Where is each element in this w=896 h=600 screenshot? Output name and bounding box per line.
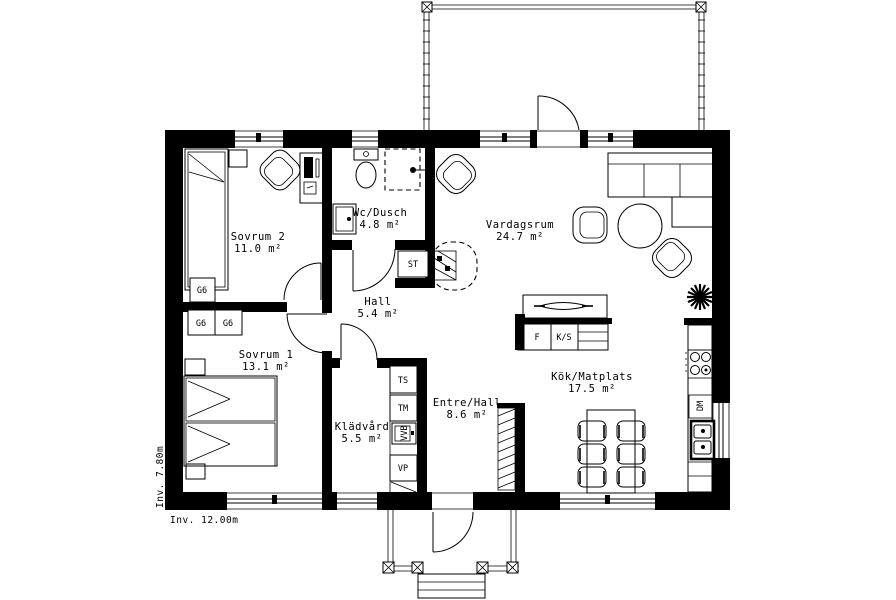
armchair-lower-icon [648, 234, 696, 282]
label-vp: VP [398, 464, 408, 474]
sovrum1-door [287, 314, 327, 353]
plant-icon [687, 284, 713, 310]
armchair-corner-icon [432, 150, 480, 198]
windows [227, 131, 729, 509]
kladvard-door [341, 324, 377, 360]
label-st: ST [408, 260, 418, 270]
label-entre: Entre/Hall [433, 397, 501, 409]
label-g6a: G6 [197, 286, 207, 296]
deck-posts [422, 2, 706, 12]
sink-icon [691, 421, 714, 459]
window-matplats [560, 493, 655, 509]
label-hall: Hall [364, 296, 391, 308]
label-g6b: G6 [196, 319, 206, 329]
label-sovrum1: Sovrum 1 [239, 349, 294, 361]
window-kladvard [337, 493, 377, 509]
stove-icon [685, 350, 712, 378]
window-vardagsrum-right [588, 131, 633, 147]
label-vardagsrum-area: 24.7 m² [496, 231, 544, 243]
label-kok: Kök/Matplats [551, 371, 633, 383]
front-door [432, 493, 473, 552]
label-ks: K/S [556, 333, 571, 343]
window-sovrum2 [235, 131, 283, 147]
window-vardagsrum-left [480, 131, 530, 147]
window-kok [713, 403, 729, 458]
floor-plan: Sovrum 2 11.0 m² Wc/Dusch 4.8 m² Vardags… [0, 0, 896, 600]
coat-rack [498, 408, 515, 490]
label-kladvard: Klädvård [335, 420, 390, 433]
single-bed-icon [185, 149, 228, 290]
nightstand-icon [229, 150, 247, 167]
dining-set [578, 410, 645, 493]
label-vardagsrum: Vardagsrum [486, 219, 554, 231]
armchair-middle-icon [573, 207, 607, 243]
porch-steps [418, 574, 485, 598]
label-ts: TS [398, 376, 408, 386]
porch [383, 510, 519, 598]
label-sovrum2: Sovrum 2 [231, 231, 286, 243]
sofa-icon [608, 153, 714, 227]
dimension-width: Inv. 12.00m [170, 515, 238, 526]
label-wc: Wc/Dusch [353, 207, 408, 219]
deck-door [537, 96, 580, 147]
sovrum1-furniture [184, 359, 277, 479]
fireplace-option [431, 242, 477, 290]
label-tm: TM [398, 404, 408, 414]
label-wc-area: 4.8 m² [360, 219, 401, 231]
label-kladvard-area: 5.5 m² [342, 433, 383, 445]
window-wc [352, 131, 378, 147]
deck-railing [422, 2, 706, 130]
vardagsrum-furniture [432, 150, 714, 310]
label-sovrum1-area: 13.1 m² [242, 361, 290, 373]
label-kok-area: 17.5 m² [568, 383, 616, 395]
dimension-height: Inv. 7.80m [155, 446, 166, 508]
label-entre-area: 8.6 m² [447, 409, 488, 421]
sovrum2-door [284, 263, 321, 300]
label-hall-area: 5.4 m² [358, 308, 399, 320]
window-sovrum1 [227, 493, 322, 509]
label-dm: DM [696, 401, 706, 411]
dining-table-icon [587, 410, 635, 493]
nightstand-icon [185, 359, 205, 375]
floor-plan-canvas: Sovrum 2 11.0 m² Wc/Dusch 4.8 m² Vardags… [0, 0, 896, 600]
label-f: F [534, 333, 539, 343]
double-bed-icon [184, 376, 277, 466]
tv-bench-icon [523, 295, 607, 318]
toilet-icon [354, 149, 378, 188]
interior-walls [183, 148, 717, 492]
label-g6c: G6 [223, 319, 233, 329]
round-table-icon [618, 204, 662, 248]
label-vvb: VVB [400, 425, 410, 440]
desk-icon [300, 153, 323, 203]
shower-icon [385, 149, 425, 190]
label-sovrum2-area: 11.0 m² [234, 243, 282, 255]
wc-door [353, 249, 395, 291]
armchair-sovrum2-icon [256, 146, 304, 194]
